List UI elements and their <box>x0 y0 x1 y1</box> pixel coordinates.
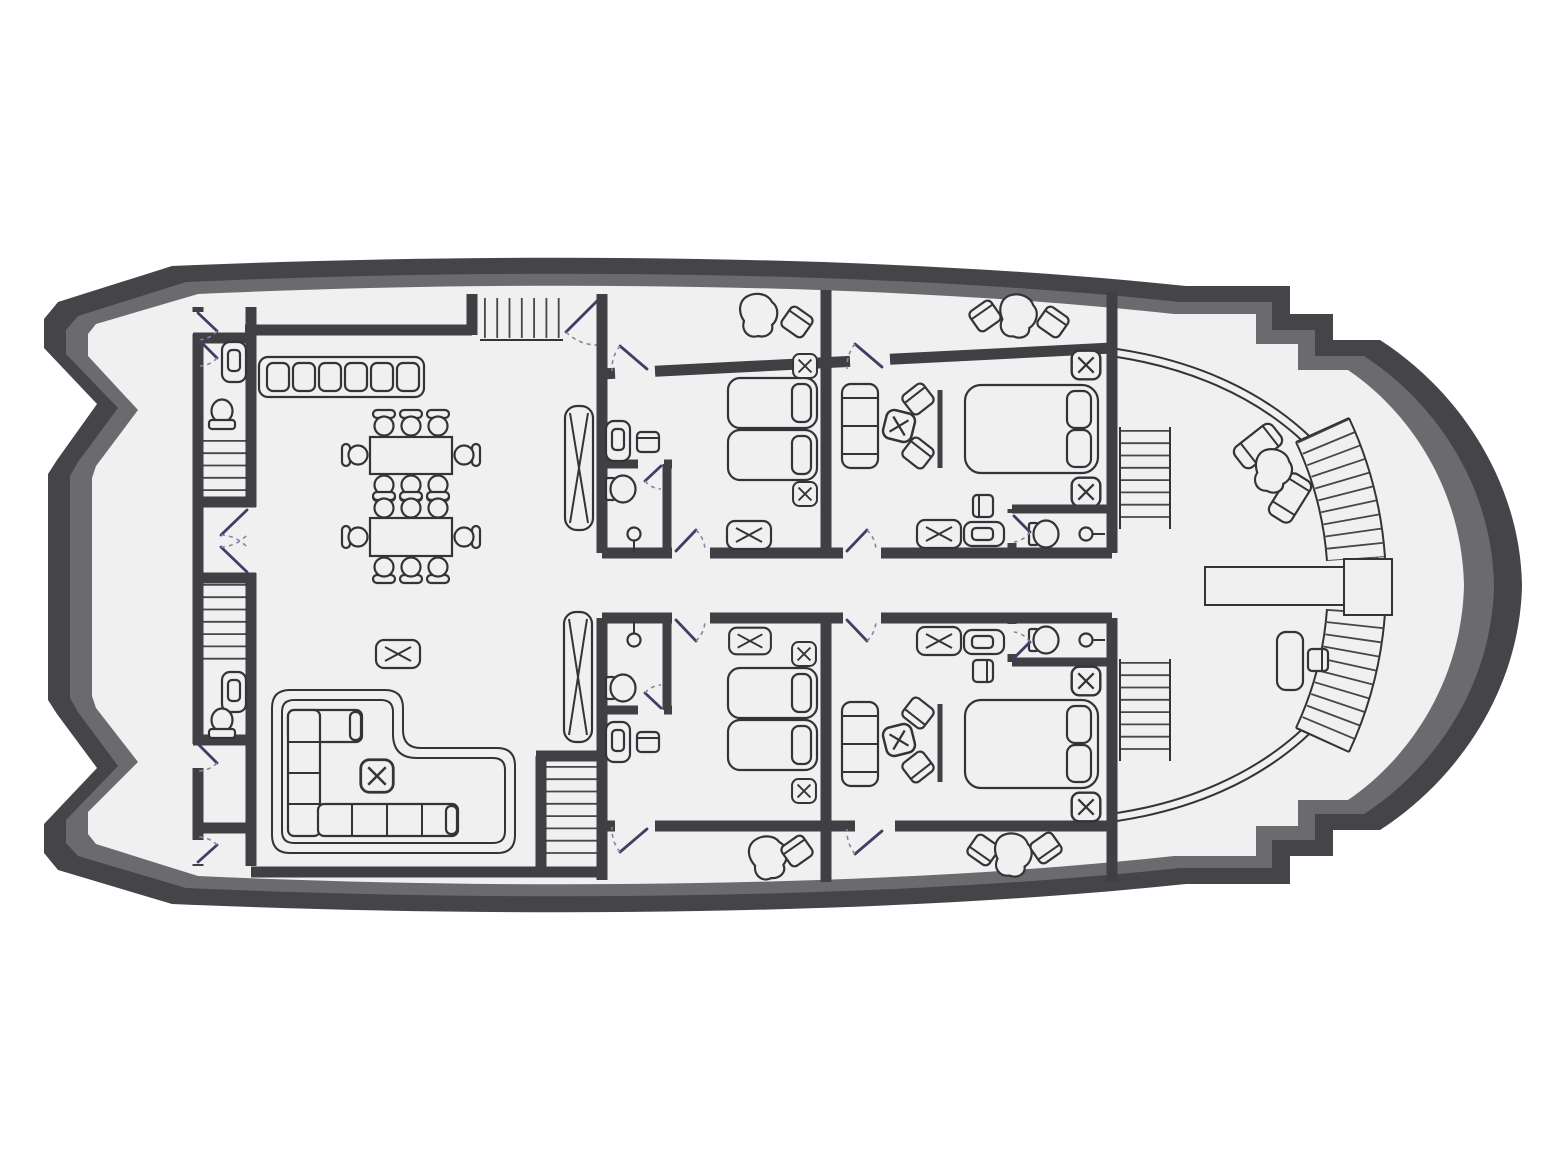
dining-chair-icon <box>427 410 449 436</box>
dining-chair-icon <box>455 526 481 548</box>
coffee-table-x-icon <box>361 760 394 793</box>
dining-chair-icon <box>373 492 395 518</box>
nightstand-x-icon <box>793 354 817 378</box>
counter-unit <box>345 363 367 391</box>
nightstand-x-icon <box>792 642 816 666</box>
nightstand-x-icon <box>1072 793 1101 822</box>
counter-unit <box>267 363 289 391</box>
nightstand-x-icon <box>792 779 816 803</box>
dining-chair-icon <box>342 444 368 466</box>
desk-chair-icon <box>1308 649 1328 671</box>
nightstand-x-icon <box>1072 351 1101 380</box>
side-table-x-icon <box>376 640 420 668</box>
stair-landing <box>1344 559 1392 615</box>
twin-bed-icon <box>728 378 817 428</box>
deck-plan-canvas <box>0 0 1556 1167</box>
coffee-table-x-icon <box>881 408 916 443</box>
dining-chair-icon <box>427 558 449 584</box>
counter-unit <box>371 363 393 391</box>
luggage-rack-x-icon <box>917 627 961 655</box>
dining-chair-icon <box>342 526 368 548</box>
twin-bed-icon <box>728 668 817 718</box>
sink-icon <box>964 522 1004 546</box>
luggage-rack-x-icon <box>917 520 961 548</box>
dining-chair-icon <box>427 492 449 518</box>
counter-unit <box>397 363 419 391</box>
dining-chair-icon <box>373 558 395 584</box>
twin-bed-icon <box>728 720 817 770</box>
twin-bed-icon <box>728 430 817 480</box>
table-top <box>370 518 452 556</box>
sink-icon <box>222 672 246 712</box>
dining-chair-icon <box>373 410 395 436</box>
counter-unit <box>319 363 341 391</box>
luggage-rack-x-icon <box>729 628 771 655</box>
sofa-icon <box>842 384 878 468</box>
sofa-icon <box>842 702 878 786</box>
deck-plan-page <box>0 0 1556 1167</box>
sink-icon <box>606 722 630 762</box>
toilet-icon <box>1029 627 1059 654</box>
luggage-rack-x-icon <box>727 521 771 549</box>
gangway-walkway <box>1205 567 1345 605</box>
shaft-bottom <box>564 612 592 742</box>
toilet-icon <box>209 709 235 739</box>
stool-icon <box>637 432 659 452</box>
toilet-icon <box>1029 521 1059 548</box>
dining-chair-icon <box>400 558 422 584</box>
sink-icon <box>606 421 630 461</box>
toilet-icon <box>606 476 636 503</box>
counter-unit <box>293 363 315 391</box>
sink-icon <box>964 630 1004 654</box>
nightstand-x-icon <box>793 482 817 506</box>
sofa-armrest <box>446 806 457 834</box>
dining-chair-icon <box>400 492 422 518</box>
shaft-top <box>565 406 593 530</box>
sink-icon <box>222 342 246 382</box>
coffee-table-x-icon <box>881 722 916 757</box>
double-bed-icon <box>965 385 1098 473</box>
double-bed-icon <box>965 700 1098 788</box>
toilet-icon <box>209 400 235 430</box>
balcony-table-icon <box>740 294 777 337</box>
dining-chair-icon <box>400 410 422 436</box>
sofa-armrest <box>350 712 361 740</box>
toilet-icon <box>606 675 636 702</box>
table-top <box>370 437 452 474</box>
stool-icon <box>637 732 659 752</box>
stool-icon <box>973 495 993 517</box>
nightstand-x-icon <box>1072 667 1101 696</box>
bow-desk <box>1277 632 1303 690</box>
stool-icon <box>973 660 993 682</box>
nightstand-x-icon <box>1072 478 1101 507</box>
galley-counter <box>259 357 424 397</box>
dining-chair-icon <box>455 444 481 466</box>
